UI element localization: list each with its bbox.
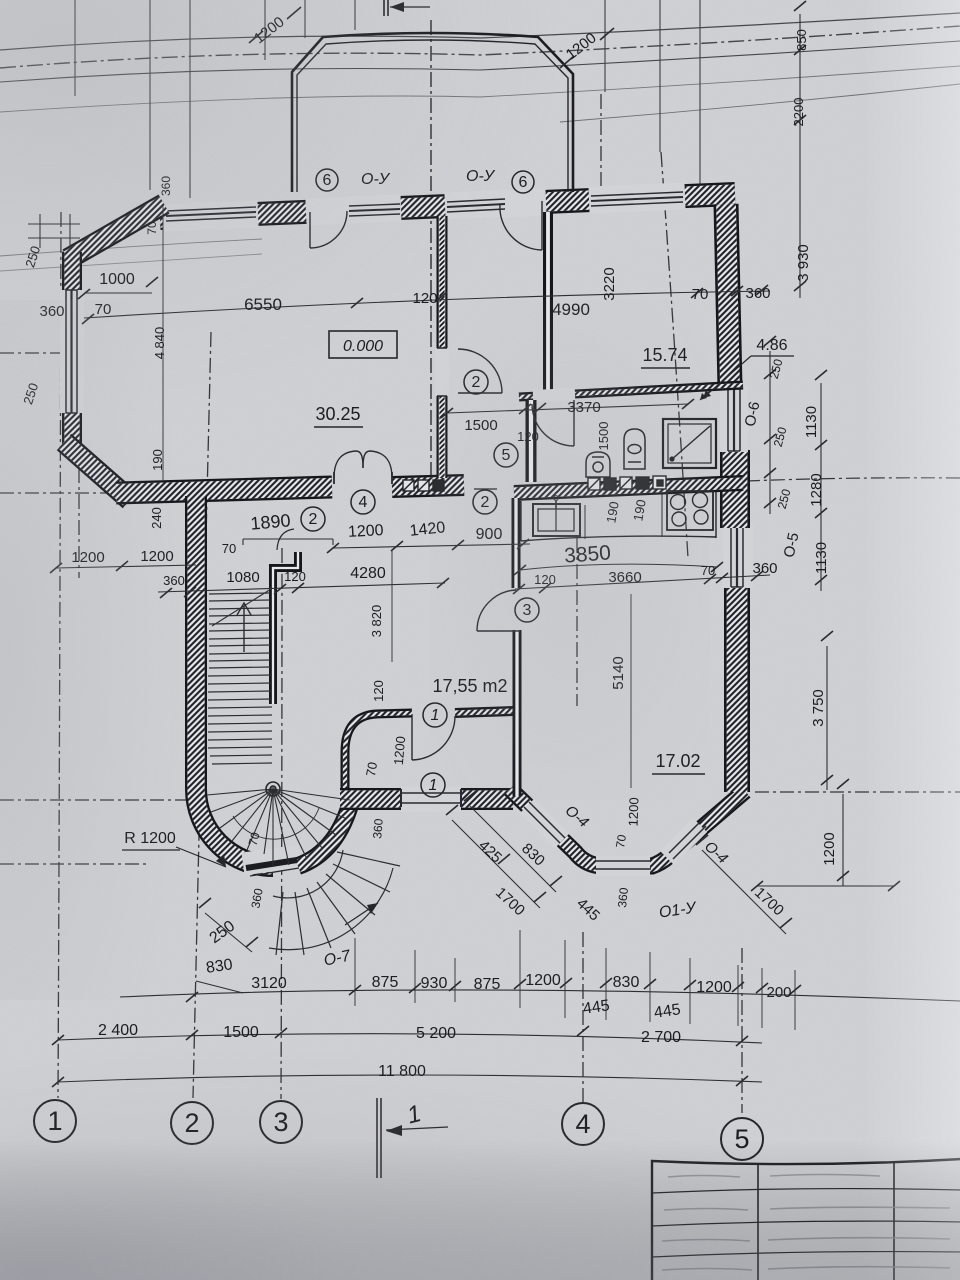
svg-text:850: 850 <box>794 29 809 51</box>
svg-text:3 930: 3 930 <box>795 244 812 282</box>
svg-text:2: 2 <box>309 511 318 528</box>
svg-text:830: 830 <box>613 974 640 991</box>
svg-text:360: 360 <box>745 285 770 302</box>
svg-text:3 820: 3 820 <box>369 605 384 638</box>
svg-text:2200: 2200 <box>791 98 806 127</box>
svg-text:4.86: 4.86 <box>756 337 787 354</box>
svg-text:1200: 1200 <box>821 832 838 865</box>
svg-text:1200: 1200 <box>348 522 385 541</box>
svg-text:360: 360 <box>370 818 386 839</box>
svg-text:930: 930 <box>421 975 448 992</box>
svg-text:1130: 1130 <box>803 406 820 438</box>
svg-text:1200: 1200 <box>696 979 732 996</box>
svg-text:3 750: 3 750 <box>810 689 827 727</box>
svg-text:70: 70 <box>613 833 629 849</box>
svg-text:200: 200 <box>766 984 791 1001</box>
svg-text:3220: 3220 <box>601 267 618 300</box>
svg-text:70: 70 <box>363 761 380 778</box>
svg-text:1890: 1890 <box>250 510 292 533</box>
svg-text:1200: 1200 <box>626 797 642 826</box>
svg-text:4: 4 <box>359 494 368 511</box>
svg-text:360: 360 <box>615 887 631 909</box>
svg-text:1080: 1080 <box>226 569 259 586</box>
svg-text:120: 120 <box>284 569 306 584</box>
svg-text:1200: 1200 <box>525 972 561 989</box>
svg-text:875: 875 <box>474 976 501 993</box>
svg-text:4280: 4280 <box>350 565 386 582</box>
svg-text:3120: 3120 <box>251 975 287 992</box>
svg-text:875: 875 <box>372 974 399 991</box>
svg-text:360: 360 <box>752 560 777 577</box>
svg-text:1280: 1280 <box>808 473 825 506</box>
svg-text:1200: 1200 <box>391 736 408 766</box>
svg-text:120: 120 <box>371 680 386 702</box>
svg-text:1130: 1130 <box>813 542 830 574</box>
svg-text:70: 70 <box>222 541 236 556</box>
